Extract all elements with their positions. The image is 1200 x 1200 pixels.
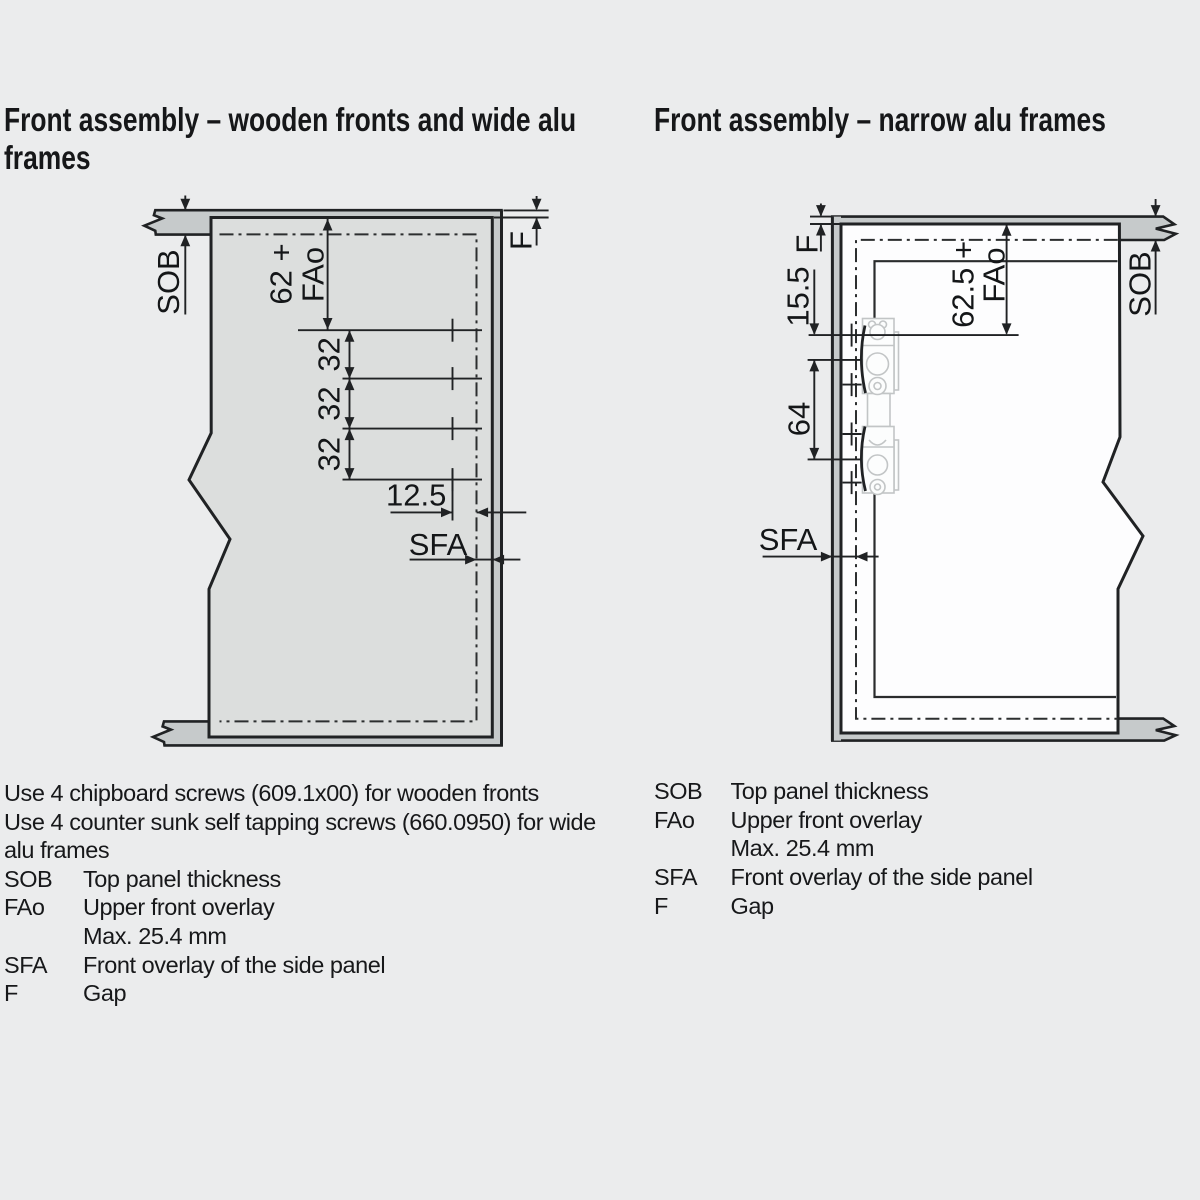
svg-text:32: 32 bbox=[312, 337, 347, 371]
svg-text:F: F bbox=[504, 231, 539, 250]
svg-text:32: 32 bbox=[312, 386, 347, 420]
svg-text:SOB: SOB bbox=[151, 249, 186, 314]
svg-text:62.5 +: 62.5 + bbox=[946, 241, 981, 328]
svg-text:SOB: SOB bbox=[1123, 251, 1158, 316]
svg-text:15.5: 15.5 bbox=[780, 266, 815, 326]
svg-text:FAo: FAo bbox=[977, 247, 1012, 302]
svg-text:64: 64 bbox=[782, 402, 817, 436]
svg-text:12.5: 12.5 bbox=[386, 478, 446, 513]
svg-text:62 +: 62 + bbox=[264, 243, 299, 304]
svg-text:F: F bbox=[790, 235, 825, 254]
svg-text:32: 32 bbox=[312, 437, 347, 471]
svg-text:SFA: SFA bbox=[759, 522, 818, 557]
svg-text:FAo: FAo bbox=[296, 247, 331, 302]
svg-text:SFA: SFA bbox=[409, 527, 468, 562]
